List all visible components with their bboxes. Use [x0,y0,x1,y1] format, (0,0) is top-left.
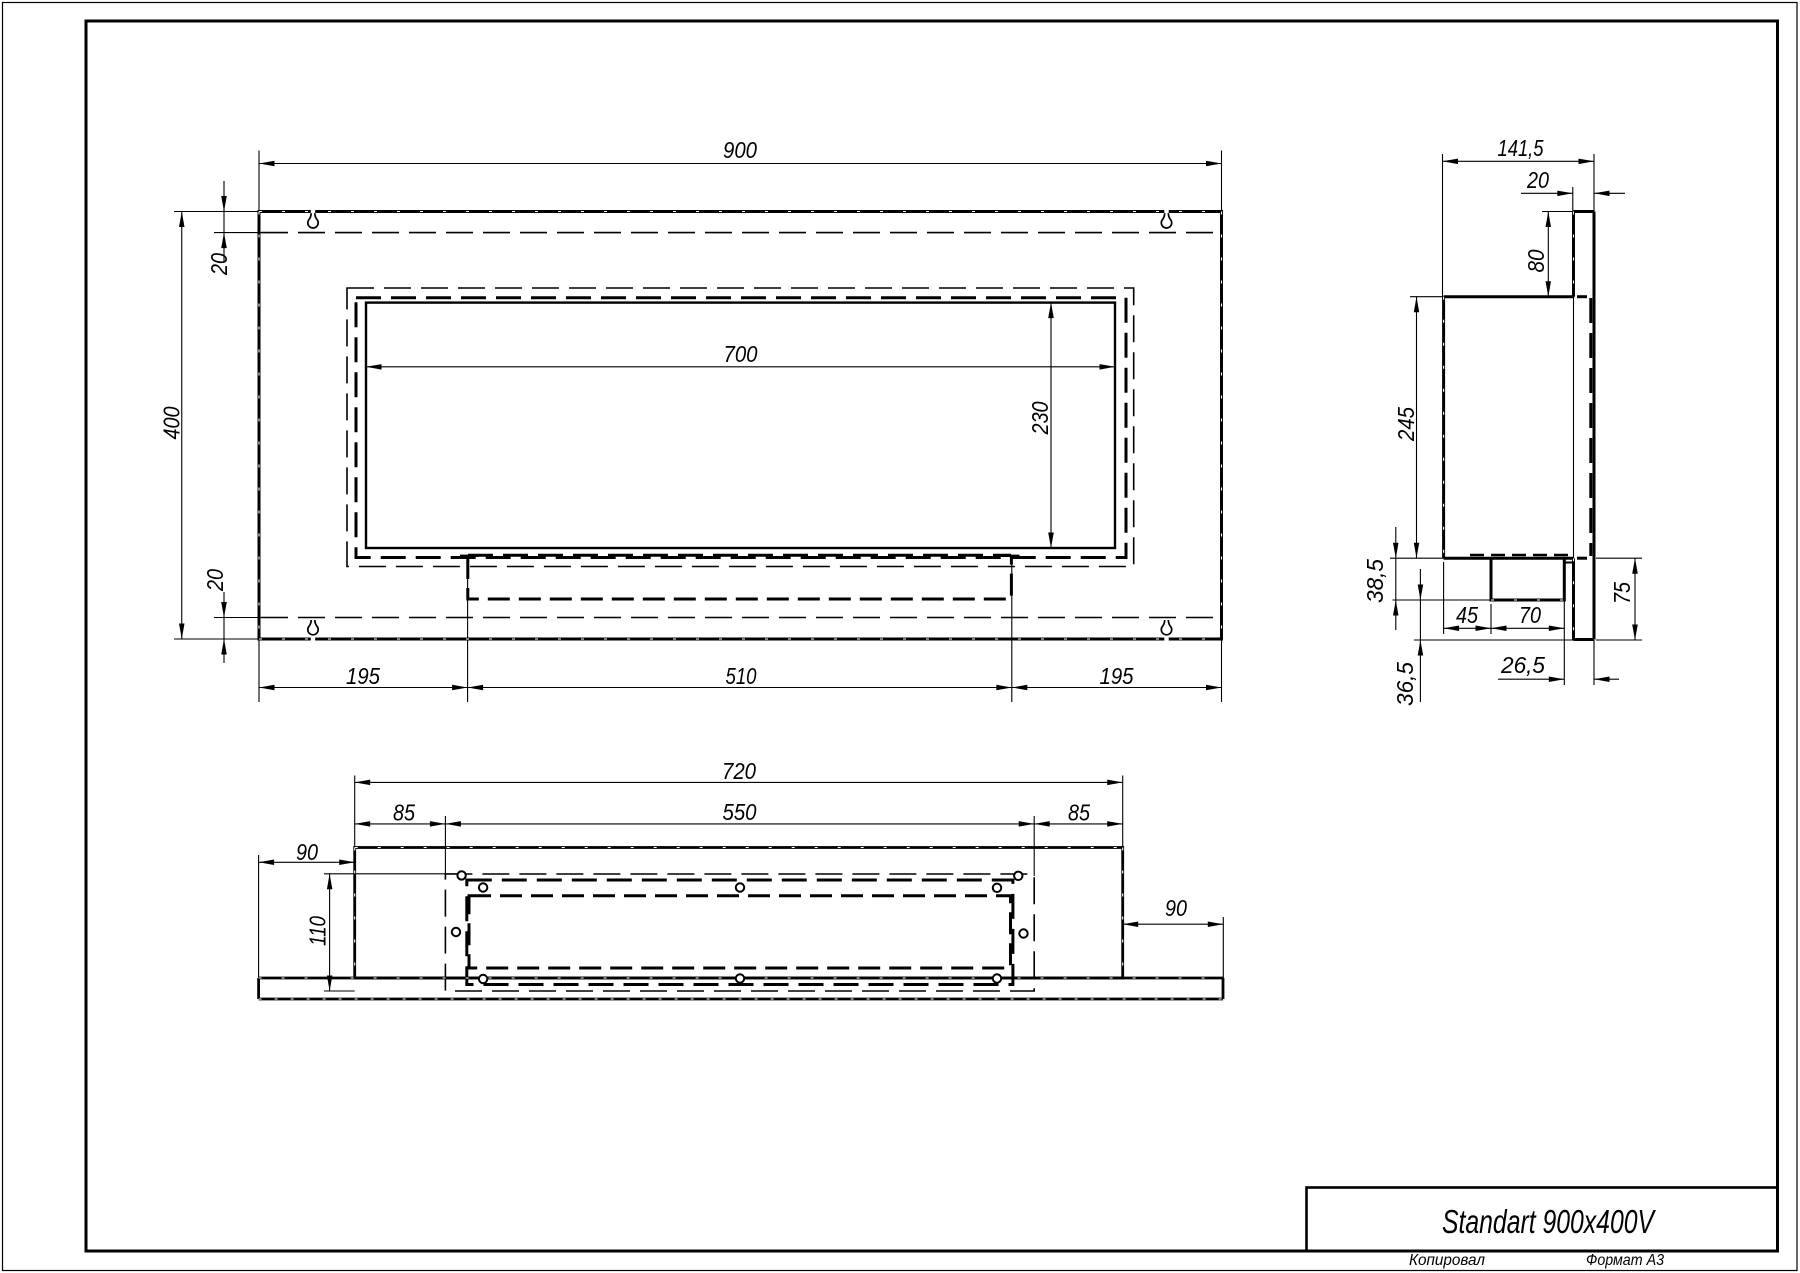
svg-text:36,5: 36,5 [1392,662,1418,706]
svg-text:230: 230 [1027,401,1053,435]
svg-text:90: 90 [296,839,318,865]
svg-text:900: 900 [723,137,757,163]
svg-text:26,5: 26,5 [1500,652,1545,678]
svg-text:700: 700 [724,341,758,367]
svg-text:75: 75 [1609,582,1635,604]
svg-text:20: 20 [1526,167,1549,193]
svg-text:90: 90 [1165,895,1187,921]
svg-text:20: 20 [206,253,232,276]
svg-text:195: 195 [346,663,380,689]
svg-text:20: 20 [202,569,228,592]
svg-text:Standart 900x400V: Standart 900x400V [1442,1203,1656,1240]
svg-text:Формат А3: Формат А3 [1586,1252,1664,1269]
svg-text:720: 720 [722,758,756,784]
svg-text:110: 110 [305,916,331,946]
svg-text:550: 550 [723,799,757,825]
svg-text:70: 70 [1519,602,1541,628]
svg-text:510: 510 [726,663,757,689]
svg-text:400: 400 [159,406,185,439]
svg-text:85: 85 [1068,800,1090,826]
svg-text:245: 245 [1393,407,1419,442]
svg-text:45: 45 [1456,602,1478,628]
svg-text:80: 80 [1523,249,1549,272]
svg-text:195: 195 [1100,663,1134,689]
svg-text:38,5: 38,5 [1362,559,1388,603]
svg-text:141,5: 141,5 [1498,135,1544,161]
svg-text:Копировал: Копировал [1409,1252,1485,1269]
svg-text:85: 85 [393,800,415,826]
